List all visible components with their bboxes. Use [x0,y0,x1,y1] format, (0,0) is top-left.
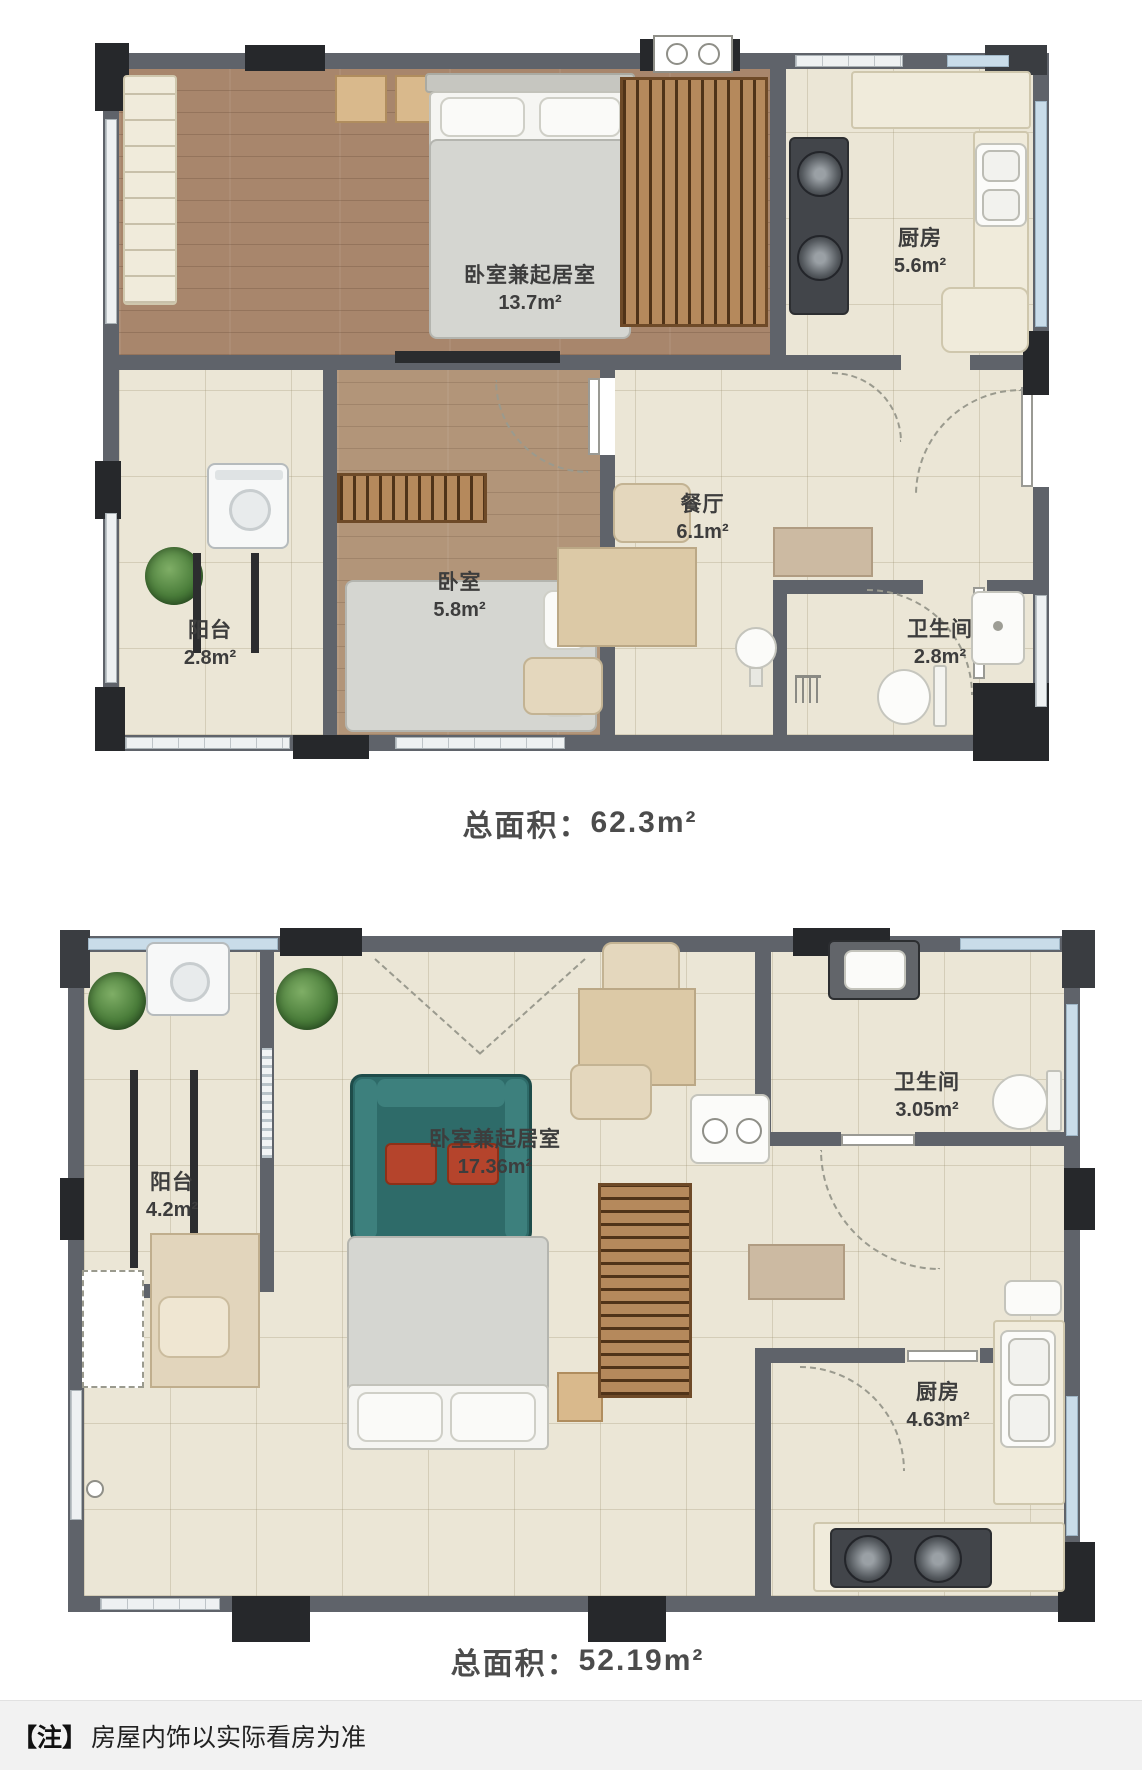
total-label: 总面积： [462,801,590,845]
bedroom-door-leaf [588,378,600,455]
bed-blanket [347,1236,549,1394]
window-left-lower [70,1390,82,1520]
room-label-balcony: 阳台 4.2m² [84,1166,260,1226]
sink-bowl [982,189,1020,221]
total-label: 总面积： [451,1639,579,1683]
room-area: 4.2m² [146,1198,198,1222]
room-name: 卧室 [438,570,482,595]
burner-icon [702,1118,728,1144]
room-name: 厨房 [898,226,942,251]
sink-bowl [982,150,1020,182]
room-label-dining: 餐厅 6.1m² [620,487,785,549]
room-area: 2.8m² [914,645,966,669]
room-name: 卧室兼起居室 [429,1127,561,1152]
toilet-bowl [877,669,931,725]
window-bottom-left [100,1598,220,1610]
desk-chair [158,1296,230,1358]
vanity-basin [844,950,906,990]
nightstand [335,75,387,123]
room-name: 卧室兼起居室 [464,263,596,288]
room-label-master: 卧室兼起居室 13.7m² [425,257,635,321]
pillar-tl [60,930,90,988]
vanity-counter [828,940,920,1000]
total-value: 62.3m² [590,806,697,840]
total-area-upper: 总面积： 62.3m² [95,803,1065,843]
washing-machine [146,942,230,1016]
wall-kitchen-south [786,355,901,370]
pedestal-sink [735,627,777,669]
vent-circle-icon [698,43,720,65]
floorplan-page: { "plan1": { "total_label": "总面积：", "tot… [0,0,1142,1770]
plant [88,972,146,1030]
burner-icon [797,151,843,197]
bed-pillow [450,1392,536,1442]
window-bedroom-bottom [395,737,565,749]
room-name: 卫生间 [907,617,973,642]
washer-drum [170,962,210,1002]
entry-door-leaf [1021,387,1033,487]
burner-icon [914,1535,962,1583]
plant [276,968,338,1030]
room-area: 4.63m² [906,1408,969,1432]
shoe-cabinet [773,527,873,577]
room-label-kitchen: 厨房 4.63m² [858,1376,1018,1436]
window-top-right [947,55,1009,67]
window-bath-right [1035,595,1047,707]
portable-stove [690,1094,770,1164]
window-balcony-left [105,513,117,683]
pillar-top1 [280,928,362,956]
window-master-left [105,119,117,324]
shower-icon [795,675,821,703]
shoe-cabinet [748,1244,845,1300]
room-label-bathroom: 卫生间 2.8m² [865,615,1015,671]
room-name: 阳台 [188,618,232,643]
wall-bath-top [773,580,923,594]
entry-gap [1033,387,1049,487]
window-balcony-bottom [125,737,290,749]
ac-unit-outline [82,1270,144,1388]
room-label-kitchen: 厨房 5.6m² [835,221,1005,283]
room-name: 卫生间 [894,1070,960,1095]
pillar-left-mid [60,1178,84,1240]
wall-bath-left [773,580,787,735]
washing-machine [207,463,289,549]
double-sink [975,143,1027,227]
footer-note: 【注】 房屋内饰以实际看房为准 [0,1700,1142,1770]
vent-box-icon [653,35,733,73]
drain-icon [86,1480,104,1498]
window-right-upper [1066,1004,1078,1136]
kitchen-small-box [1004,1280,1062,1316]
wall-bath-bottom [771,1132,841,1146]
room-area: 17.36m² [458,1155,533,1179]
room-area: 3.05m² [895,1098,958,1122]
room-name: 餐厅 [681,492,725,517]
window-kitchen-top [795,55,903,67]
vent-circle-icon [666,43,688,65]
window-right-lower [1066,1396,1078,1536]
window-top-right [960,938,1060,950]
wardrobe-left [123,75,177,305]
sofa-arm [355,1079,377,1239]
burner-icon [844,1535,892,1583]
room-label-bathroom: 卫生间 3.05m² [852,1066,1002,1126]
pillar-bl [232,1596,310,1642]
washer-drum [229,489,271,531]
floorplan-lower: 阳台 4.2m² 卧室兼起居室 17.36m² 卫生间 3.05m² 厨房 4.… [60,928,1095,1698]
kitchen-door-leaf [907,1350,978,1362]
room-label-balcony: 阳台 2.8m² [135,615,285,673]
floorplan-upper: 卧室兼起居室 13.7m² 厨房 5.6m² 餐厅 6.1m² 卧室 5.8m²… [95,35,1065,850]
sliding-door-track [395,351,560,363]
pillar-bl [95,687,125,751]
toilet-tank [933,665,947,727]
room-area: 2.8m² [184,646,236,670]
burner-icon [736,1118,762,1144]
dining-chair [523,657,603,715]
room-area: 5.8m² [433,598,485,622]
dining-table [557,547,697,647]
toilet-tank [1046,1070,1062,1132]
bed-pillow [440,97,525,137]
room-label-bedroom: 卧室 5.8m² [377,565,542,627]
pillar-tr [1062,930,1095,988]
room-area: 5.6m² [894,254,946,278]
slatted-wardrobe [620,77,768,327]
footer-text: 房屋内饰以实际看房为准 [91,1718,366,1754]
wall-master-kitchen [770,69,786,355]
bed-pillow [357,1392,443,1442]
wall-kitchen-left [755,1348,771,1596]
bed-headboard [425,73,635,93]
wall-kitchen-top [755,1348,905,1363]
washer-panel [215,470,283,480]
stove-cooktop [830,1528,992,1588]
slatted-bench [337,473,487,523]
door-gap [600,378,615,455]
slatted-wardrobe [598,1183,692,1398]
pillar-right-mid [1064,1168,1095,1230]
nightstand [557,1372,603,1422]
pillar-bottom-mid [293,735,369,759]
dining-chair [570,1064,652,1120]
room-name: 厨房 [916,1380,960,1405]
total-value: 52.19m² [579,1644,705,1678]
bath-door-leaf [841,1134,915,1146]
window-kitchen-right [1035,101,1047,327]
room-label-main: 卧室兼起居室 17.36m² [390,1120,600,1186]
pillar-top1 [245,45,325,71]
wall-nook-bedroom [323,370,337,735]
wall-bath-bottom2 [915,1132,1080,1146]
total-area-lower: 总面积： 52.19m² [60,1640,1095,1682]
pillar-bottom-mid [588,1596,666,1642]
room-area: 13.7m² [498,291,561,315]
room-area: 6.1m² [676,520,728,544]
kitchen-cabinet [941,287,1029,353]
pillar-left-mid [95,461,121,519]
room-name: 阳台 [150,1170,194,1195]
bed-pillow [539,97,621,137]
sofa-back [377,1079,505,1107]
pedestal-sink-stem [749,667,763,687]
window-hatch [262,1048,272,1158]
kitchen-counter-top [851,71,1031,129]
footer-tag: 【注】 [12,1718,87,1754]
